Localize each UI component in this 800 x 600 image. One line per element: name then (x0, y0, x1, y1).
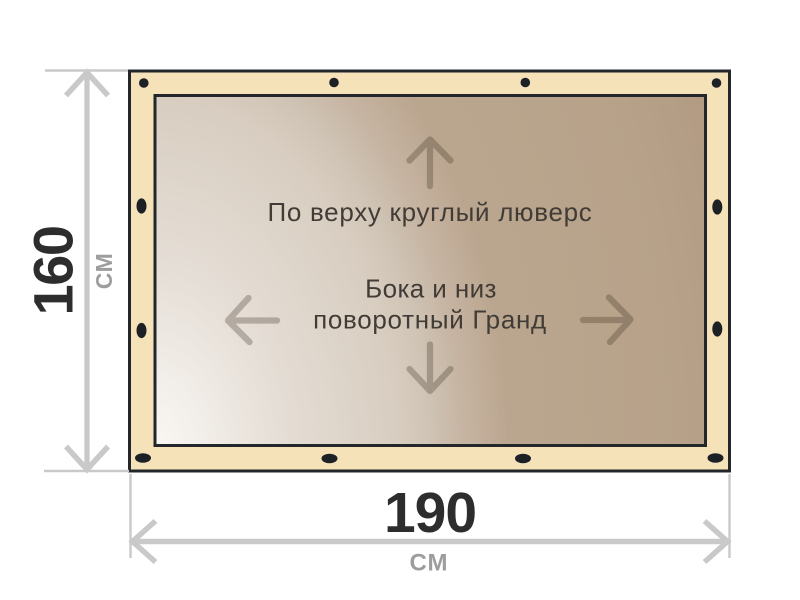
svg-text:СМ: СМ (91, 253, 117, 289)
svg-text:СМ: СМ (409, 550, 448, 577)
svg-text:190: 190 (384, 481, 476, 545)
svg-text:поворотный Гранд: поворотный Гранд (313, 305, 547, 335)
svg-text:Бока и низ: Бока и низ (365, 274, 497, 304)
svg-text:По верху круглый люверс: По верху круглый люверс (267, 197, 592, 227)
svg-text:160: 160 (22, 227, 85, 316)
